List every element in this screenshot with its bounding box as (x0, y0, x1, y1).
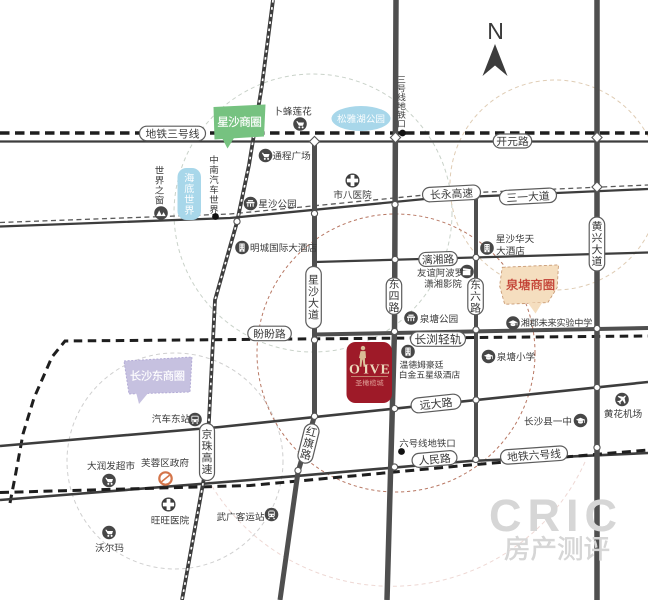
svg-text:N: N (487, 18, 504, 44)
svg-text:CRIC: CRIC (489, 490, 623, 541)
svg-text:O: O (349, 363, 360, 378)
svg-text:IVE: IVE (363, 363, 390, 378)
